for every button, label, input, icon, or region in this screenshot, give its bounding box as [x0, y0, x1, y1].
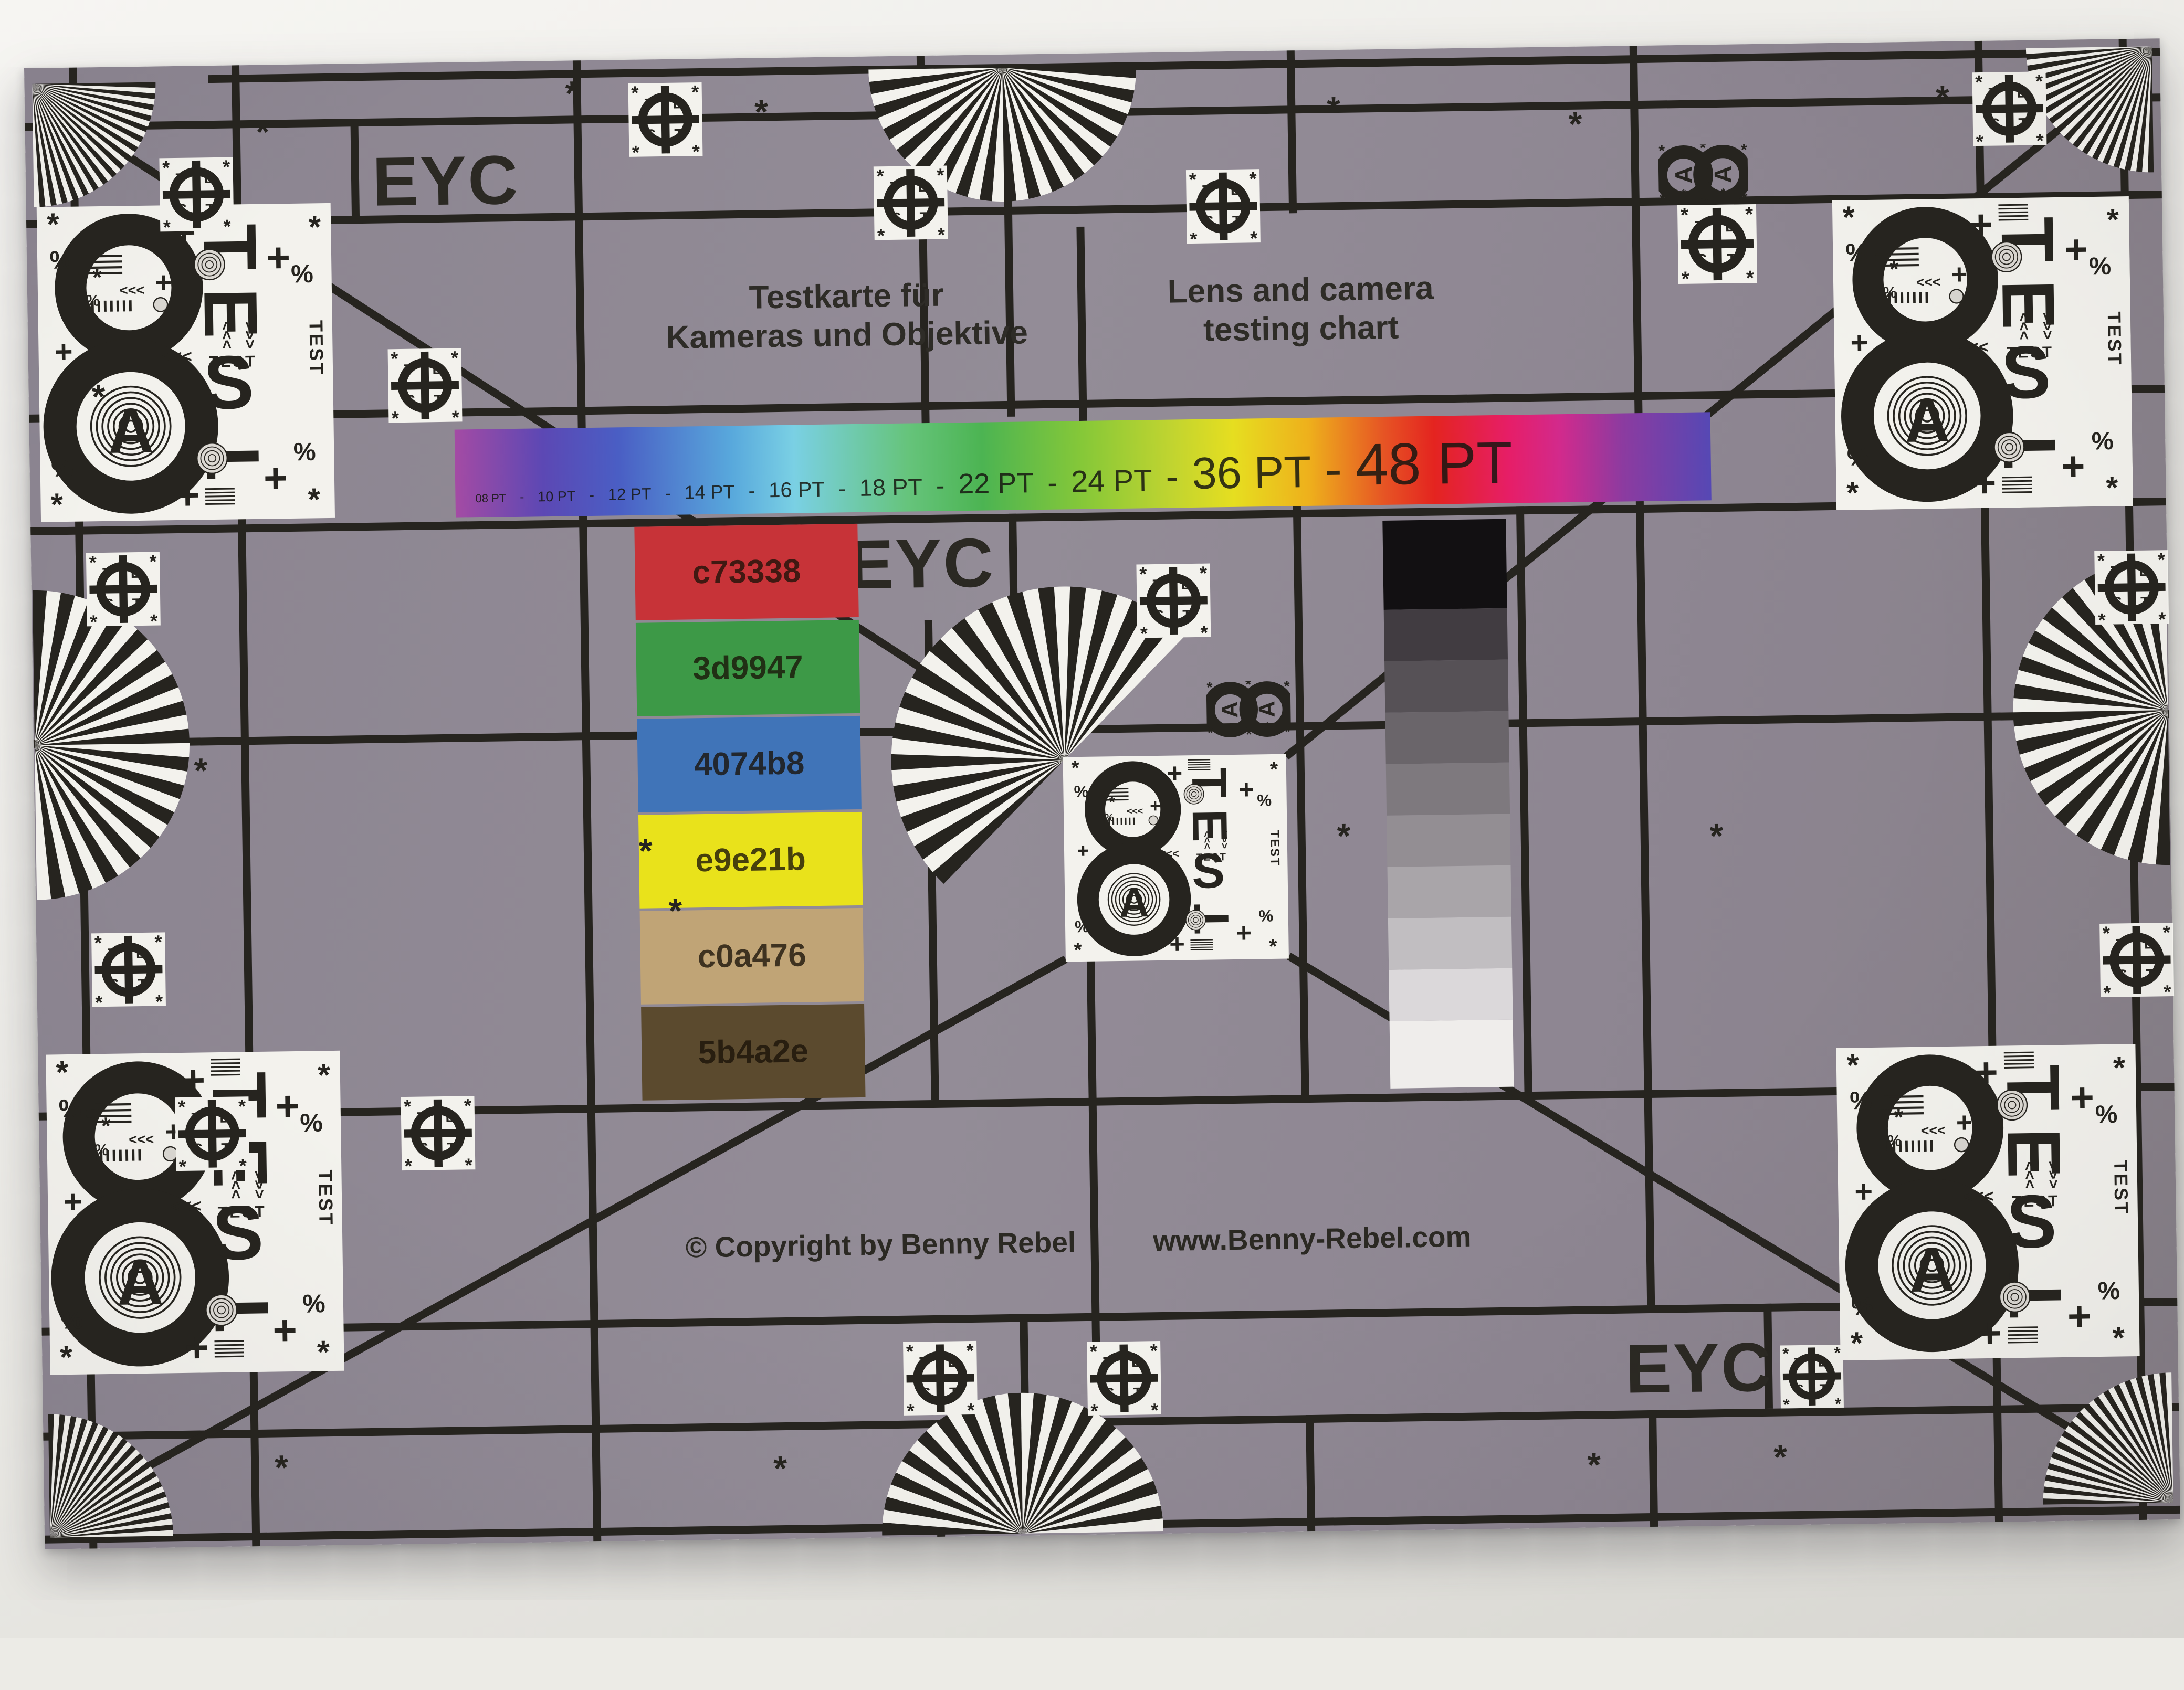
grayscale-step [1382, 519, 1507, 610]
test-marker: TEST**** [2099, 923, 2174, 997]
panel-glyph: % [86, 292, 100, 310]
panel-bar [1190, 939, 1213, 941]
panel-ring [1186, 910, 1206, 930]
color-patch-label: 4074b8 [637, 716, 861, 812]
asterisk-mark: * [256, 114, 270, 149]
panel-glyph: * [2106, 470, 2118, 505]
panel-glyph: E [1231, 182, 1241, 198]
panel-glyph: * [317, 1334, 330, 1370]
asterisk-mark: * [1936, 80, 1950, 115]
panel-glyph: <<< [1201, 831, 1213, 849]
panel-glyph: A [1904, 386, 1950, 456]
panel-bar [1913, 292, 1916, 303]
panel-glyph: T [175, 170, 185, 186]
pt-label: 18 PT [859, 477, 923, 499]
panel-glyph: TEST [1196, 851, 1227, 863]
grayscale-step [1387, 814, 1510, 867]
test-marker-art: TEST**** [2099, 923, 2174, 997]
panel-glyph: <<< [227, 1171, 245, 1199]
panel-glyph: % [1847, 443, 1870, 471]
panel-bar [1188, 759, 1211, 761]
test-marker: TEST**** [1972, 71, 2046, 146]
panel-glyph: * [239, 1155, 247, 1171]
panel-glyph: <<< [1921, 1123, 1946, 1139]
panel-glyph: * [1228, 687, 1232, 699]
panel-glyph: + [63, 1184, 82, 1219]
panel-glyph: T [644, 96, 654, 112]
panel-glyph: T [221, 1140, 230, 1156]
panel-glyph: S [1204, 213, 1214, 229]
pt-label: 48 PT [1355, 437, 1513, 492]
panel-glyph: E [673, 95, 682, 111]
panel-bar [1190, 942, 1213, 943]
test-marker: TEST**** [903, 1341, 978, 1416]
panel-bar [2098, 583, 2166, 591]
panel-glyph: T [2110, 563, 2120, 579]
panel-glyph: % [1850, 1087, 1872, 1115]
test-marker: TEST**** [159, 157, 234, 231]
panel-glyph: T [205, 200, 215, 217]
panel-ring [1997, 1090, 2027, 1120]
panel-glyph: E [2139, 563, 2149, 579]
siemens-star-fan [2041, 1371, 2184, 1635]
test-marker-art: TEST**** [628, 82, 703, 157]
test-marker: TEST**** [1186, 169, 1261, 244]
panel-glyph: E [131, 565, 141, 581]
panel-glyph: * [1720, 150, 1725, 162]
panel-bar [132, 1149, 134, 1160]
asterisk-mark: * [668, 893, 682, 928]
panel-glyph: T [447, 1139, 456, 1156]
panel-glyph: T [2140, 594, 2150, 610]
panel-glyph: % [2089, 252, 2112, 281]
panel-bar [1117, 818, 1118, 825]
panel-glyph: * [464, 1096, 472, 1116]
test-marker-art: TEST**** [1780, 1345, 1844, 1409]
panel-glyph: % [1075, 917, 1089, 936]
panel-glyph: * [178, 1096, 186, 1118]
panel-glyph: * [1842, 200, 1855, 235]
panel-glyph: <<< [1159, 848, 1179, 861]
panel-glyph: + [1850, 325, 1868, 360]
panel-bar [1129, 818, 1130, 825]
panel-glyph: * [692, 141, 700, 157]
panel-bar [1907, 292, 1909, 303]
test-marker: TEST**** [1087, 1341, 1161, 1416]
panel-glyph: <<< [1219, 831, 1231, 849]
grayscale-wedge [1382, 519, 1514, 1089]
pt-separator: - [1324, 445, 1342, 492]
panel-glyph: S [418, 1140, 428, 1156]
panel-glyph: S [177, 201, 187, 217]
asterisk-mark: * [1773, 1440, 1788, 1474]
panel-glyph: * [631, 82, 639, 104]
panel-glyph: * [2097, 550, 2106, 572]
panel-glyph: * [92, 263, 102, 290]
test-marker-art: TEST**** [159, 157, 234, 231]
panel-glyph: S [1795, 1382, 1803, 1396]
panel-bar [1120, 818, 1122, 825]
panel-glyph: + [54, 334, 73, 369]
panel-glyph: * [1835, 1395, 1842, 1408]
panel-bar [877, 198, 944, 207]
paper-background: EYC EYC EYC Testkarte für Kameras und Ob… [0, 0, 2184, 1638]
panel-ring [154, 298, 168, 312]
website-text: www.Benny-Rebel.com [1153, 1220, 1472, 1258]
pt-separator: - [748, 482, 755, 500]
panel-glyph: * [2103, 923, 2111, 944]
panel-glyph: + [266, 234, 291, 281]
panel-glyph: A [1254, 701, 1279, 717]
eight-a-badge: AA********** [1206, 680, 1291, 738]
color-patch-label: 5b4a2e [641, 1004, 865, 1101]
panel-ring [194, 249, 225, 280]
panel-glyph: * [404, 1096, 412, 1117]
panel-bar [2103, 955, 2171, 964]
panel-glyph: * [906, 1341, 915, 1362]
panel-glyph: + [175, 471, 200, 518]
panel-bar [125, 1149, 128, 1160]
panel-glyph: A [1709, 165, 1736, 183]
panel-glyph: * [1150, 1341, 1158, 1361]
panel-glyph: + [272, 1306, 298, 1354]
panel-bar [205, 499, 235, 501]
pt-label: 10 PT [538, 490, 575, 503]
eight-test-panel-art: A*%<<<+TESTTESTTEST++++%%%%****<<<<<<<<<… [37, 203, 335, 522]
panel-glyph: <<< [162, 346, 192, 366]
panel-glyph: E [204, 170, 214, 186]
pt-separator: - [520, 492, 524, 503]
test-marker: TEST**** [91, 932, 166, 1007]
panel-glyph: + [2070, 1075, 2094, 1121]
panel-glyph: E [948, 1354, 958, 1370]
panel-bar [215, 1351, 244, 1354]
eight-a-badge-art: AA********** [1658, 144, 1748, 205]
panel-glyph: E [1181, 576, 1191, 593]
panel-bar [1188, 764, 1211, 766]
panel-glyph: * [967, 1399, 975, 1416]
panel-bar [1189, 202, 1257, 211]
panel-glyph: TEST [2104, 311, 2125, 366]
panel-glyph: T [1820, 1382, 1828, 1396]
title-german: Testkarte für Kameras und Objektive [665, 274, 1028, 357]
panel-glyph: * [1269, 935, 1278, 958]
panel-bar [2008, 1326, 2038, 1328]
test-marker-art: TEST**** [903, 1341, 978, 1416]
pt-label: 36 PT [1192, 452, 1311, 494]
asterisk-mark: * [565, 76, 579, 110]
panel-glyph: * [2035, 71, 2044, 92]
panel-glyph: * [1090, 1341, 1098, 1362]
panel-bar [205, 495, 235, 498]
panel-glyph: TEST [2012, 1192, 2060, 1210]
panel-glyph: A [1670, 166, 1697, 184]
pt-label: 14 PT [684, 483, 734, 501]
grayscale-step [1388, 917, 1512, 970]
panel-bar [1905, 1141, 1908, 1152]
copyright-text: © Copyright by Benny Rebel [685, 1225, 1076, 1264]
panel-ring [1991, 242, 2021, 272]
grayscale-step [1384, 608, 1508, 661]
panel-glyph: * [308, 482, 321, 517]
test-marker: TEST**** [1780, 1345, 1844, 1409]
panel-bar [163, 190, 230, 199]
panel-bar [2008, 1338, 2038, 1340]
panel-glyph: * [1265, 686, 1269, 698]
panel-glyph: + [1169, 929, 1185, 959]
panel-glyph: S [1696, 251, 1707, 269]
eight-a-badge-art: AA********** [1206, 680, 1291, 738]
asterisk-mark: * [1327, 91, 1341, 126]
asterisk-mark: * [1568, 107, 1582, 141]
panel-glyph: + [1854, 1174, 1873, 1209]
panel-glyph: * [966, 1341, 974, 1361]
panel-glyph: T [132, 595, 142, 611]
panel-glyph: % [1105, 812, 1114, 823]
panel-glyph: * [2106, 203, 2119, 237]
panel-bar [632, 115, 699, 124]
color-patch-column: c733383d99474074b8e9e21bc0a4765b4a2e [634, 524, 865, 1103]
panel-glyph: * [1200, 564, 1208, 584]
pt-label: 12 PT [608, 487, 652, 502]
panel-bar [1681, 239, 1753, 249]
panel-glyph: * [2158, 608, 2167, 625]
panel-glyph: * [2113, 1050, 2126, 1085]
panel-glyph: * [163, 216, 171, 231]
panel-glyph: S [109, 976, 119, 992]
panel-glyph: E [219, 1109, 229, 1125]
panel-glyph: T [890, 178, 899, 195]
asterisk-mark: * [754, 94, 769, 129]
panel-glyph: S [646, 126, 656, 143]
panel-ring [1994, 432, 2024, 462]
panel-glyph: TEST [2110, 1160, 2131, 1216]
panel-glyph: * [1245, 680, 1251, 692]
panel-bar [215, 1348, 244, 1350]
pt-separator: - [936, 474, 945, 498]
panel-bar [211, 1059, 240, 1061]
panel-glyph: T [138, 976, 147, 992]
color-patch: 5b4a2e [641, 1004, 865, 1101]
panel-glyph: * [1746, 267, 1755, 284]
test-marker-art: TEST**** [388, 348, 463, 423]
panel-glyph: + [1969, 202, 1993, 247]
title-english-line2: testing chart [1168, 308, 1434, 351]
panel-glyph: T [108, 945, 117, 962]
asterisk-mark: * [1709, 818, 1724, 853]
panel-glyph: * [90, 611, 98, 626]
panel-glyph: * [1699, 144, 1706, 157]
panel-ring [1949, 289, 1963, 303]
panel-glyph: A [108, 396, 154, 467]
panel-glyph: E [136, 945, 146, 962]
panel-glyph: T [417, 1109, 426, 1125]
color-patch: c73338 [634, 524, 858, 620]
grayscale-step [1384, 660, 1508, 713]
panel-glyph: % [94, 1141, 109, 1159]
color-patch: 3d9947 [636, 620, 860, 716]
panel-glyph: % [1258, 907, 1273, 925]
test-marker-art: TEST**** [874, 165, 948, 240]
pt-separator: - [1047, 469, 1057, 496]
test-marker: TEST**** [1136, 564, 1211, 638]
eight-test-panel: A*%<<<+TESTTESTTEST++++%%%%****<<<<<<<<<… [1832, 196, 2133, 510]
panel-glyph: TEST [209, 353, 257, 371]
panel-glyph: T [1133, 1385, 1142, 1401]
panel-glyph: E [2144, 935, 2154, 952]
panel-glyph: * [938, 224, 946, 240]
panel-glyph: + [2067, 1294, 2091, 1339]
panel-glyph: * [1745, 204, 1754, 226]
panel-bar [94, 965, 162, 974]
panel-bar [113, 1150, 115, 1161]
panel-glyph: * [1721, 186, 1726, 198]
panel-glyph: + [155, 267, 172, 298]
color-patch: 4074b8 [637, 716, 861, 812]
panel-glyph: * [2036, 130, 2044, 146]
panel-glyph: % [2097, 1277, 2120, 1305]
panel-glyph: * [56, 1054, 69, 1090]
panel-glyph: T [920, 209, 929, 225]
panel-glyph: + [275, 1082, 300, 1129]
eight-test-panel: A*%<<<+TESTTESTTEST++++%%%%****<<<<<<<<<… [1063, 754, 1289, 962]
panel-bar [1900, 292, 1903, 303]
test-marker: TEST**** [2094, 550, 2169, 625]
test-marker: TEST**** [628, 82, 703, 157]
panel-glyph: E [918, 178, 928, 195]
panel-glyph: <<< [1963, 1186, 1994, 1206]
panel-glyph: A [1217, 701, 1243, 718]
panel-glyph: <<< [171, 1197, 202, 1217]
panel-bar [119, 1150, 122, 1161]
panel-glyph: * [691, 82, 700, 103]
panel-ring [1184, 784, 1204, 804]
panel-bar [1912, 1140, 1914, 1152]
panel-bar [2002, 480, 2032, 482]
panel-glyph: TEST [314, 1169, 337, 1227]
panel-bar [1918, 1140, 1920, 1152]
panel-glyph: * [465, 1154, 473, 1170]
panel-bar [178, 1129, 246, 1138]
panel-glyph: * [223, 216, 232, 232]
panel-glyph: * [1658, 144, 1665, 160]
pt-size-scale-bar: 08 PT-10 PT-12 PT-14 PT-16 PT-18 PT-22 P… [455, 412, 1711, 517]
panel-glyph: <<< [1916, 274, 1941, 290]
grayscale-step [1389, 968, 1513, 1021]
panel-glyph: <<< [2021, 1161, 2039, 1189]
panel-ring [2000, 1282, 2030, 1312]
panel-glyph: * [1206, 680, 1212, 695]
panel-glyph: % [2095, 1101, 2118, 1129]
panel-glyph: T [949, 1385, 959, 1401]
panel-glyph: * [1074, 939, 1083, 962]
panel-glyph: T [1794, 1356, 1802, 1370]
test-marker: TEST**** [86, 552, 161, 626]
panel-glyph: * [632, 142, 640, 157]
panel-glyph: T [1232, 213, 1242, 229]
panel-glyph: * [1246, 726, 1252, 738]
panel-glyph: T [674, 126, 684, 142]
panel-glyph: + [1974, 1050, 1998, 1095]
eyc-text-top-left: EYC [372, 140, 520, 221]
panel-glyph: * [2098, 609, 2106, 625]
panel-glyph: * [101, 1113, 111, 1139]
pt-separator: - [665, 485, 670, 501]
asterisk-mark: * [275, 1450, 289, 1484]
panel-glyph: <<< [2044, 1161, 2062, 1189]
panel-bar [205, 492, 235, 494]
panel-bar [2008, 1330, 2038, 1332]
pt-label: 08 PT [475, 493, 506, 504]
panel-bar [1976, 104, 2043, 113]
panel-bar [138, 1149, 141, 1160]
panel-bar [1090, 1374, 1158, 1382]
panel-glyph: S [1105, 1385, 1115, 1401]
panel-glyph: T [1727, 251, 1737, 268]
panel-glyph: TEST [305, 320, 327, 376]
panel-bar [1191, 944, 1213, 946]
panel-glyph: T [1152, 577, 1162, 593]
panel-glyph: * [1846, 476, 1859, 510]
panel-bar [1925, 292, 1928, 303]
panel-glyph: * [1889, 256, 1899, 282]
panel-glyph: T [1182, 607, 1192, 624]
panel-glyph: % [58, 1094, 81, 1123]
eight-test-panel-art: A*%<<<+TESTTESTTEST++++%%%%****<<<<<<<<<… [1832, 196, 2133, 510]
panel-glyph: * [150, 610, 159, 627]
panel-ring [206, 1294, 237, 1325]
asterisk-mark: * [194, 753, 208, 787]
panel-bar [123, 300, 125, 311]
panel-glyph: % [300, 1109, 323, 1138]
panel-glyph: S [1990, 115, 2000, 132]
test-marker-art: TEST**** [1186, 169, 1261, 244]
panel-glyph: TEST [218, 1203, 267, 1221]
test-marker-art: TEST**** [2094, 550, 2169, 625]
title-german-line2: Kameras und Objektive [666, 313, 1028, 357]
siemens-star-fan [0, 1412, 175, 1663]
panel-bar [1125, 818, 1126, 825]
panel-glyph: * [451, 407, 460, 423]
panel-glyph: * [47, 207, 60, 242]
panel-glyph: + [1951, 259, 1968, 290]
panel-glyph: S [104, 596, 114, 612]
panel-glyph: E [2017, 84, 2026, 100]
panel-bar [205, 488, 235, 490]
panel-ring [197, 443, 227, 473]
panel-bar [129, 300, 132, 311]
panel-bar [1999, 212, 2029, 214]
panel-glyph: * [451, 348, 459, 368]
panel-glyph: * [1700, 193, 1707, 206]
panel-glyph: E [432, 361, 442, 377]
pt-label: 16 PT [769, 480, 825, 500]
panel-bar [1998, 204, 2028, 206]
panel-glyph: + [2061, 444, 2085, 489]
panel-glyph: % [293, 438, 316, 467]
panel-glyph: E [1131, 1354, 1141, 1370]
panel-bar [1919, 292, 1922, 303]
color-patch-label: 3d9947 [636, 620, 860, 716]
panel-glyph: % [1257, 791, 1272, 809]
panel-glyph: % [1074, 783, 1088, 801]
panel-bar [1133, 818, 1135, 825]
panel-bar [1783, 1372, 1841, 1380]
asterisk-mark: * [91, 379, 106, 414]
panel-bar [211, 1062, 240, 1064]
panel-glyph: T [404, 361, 414, 377]
panel-bar [211, 1066, 240, 1068]
